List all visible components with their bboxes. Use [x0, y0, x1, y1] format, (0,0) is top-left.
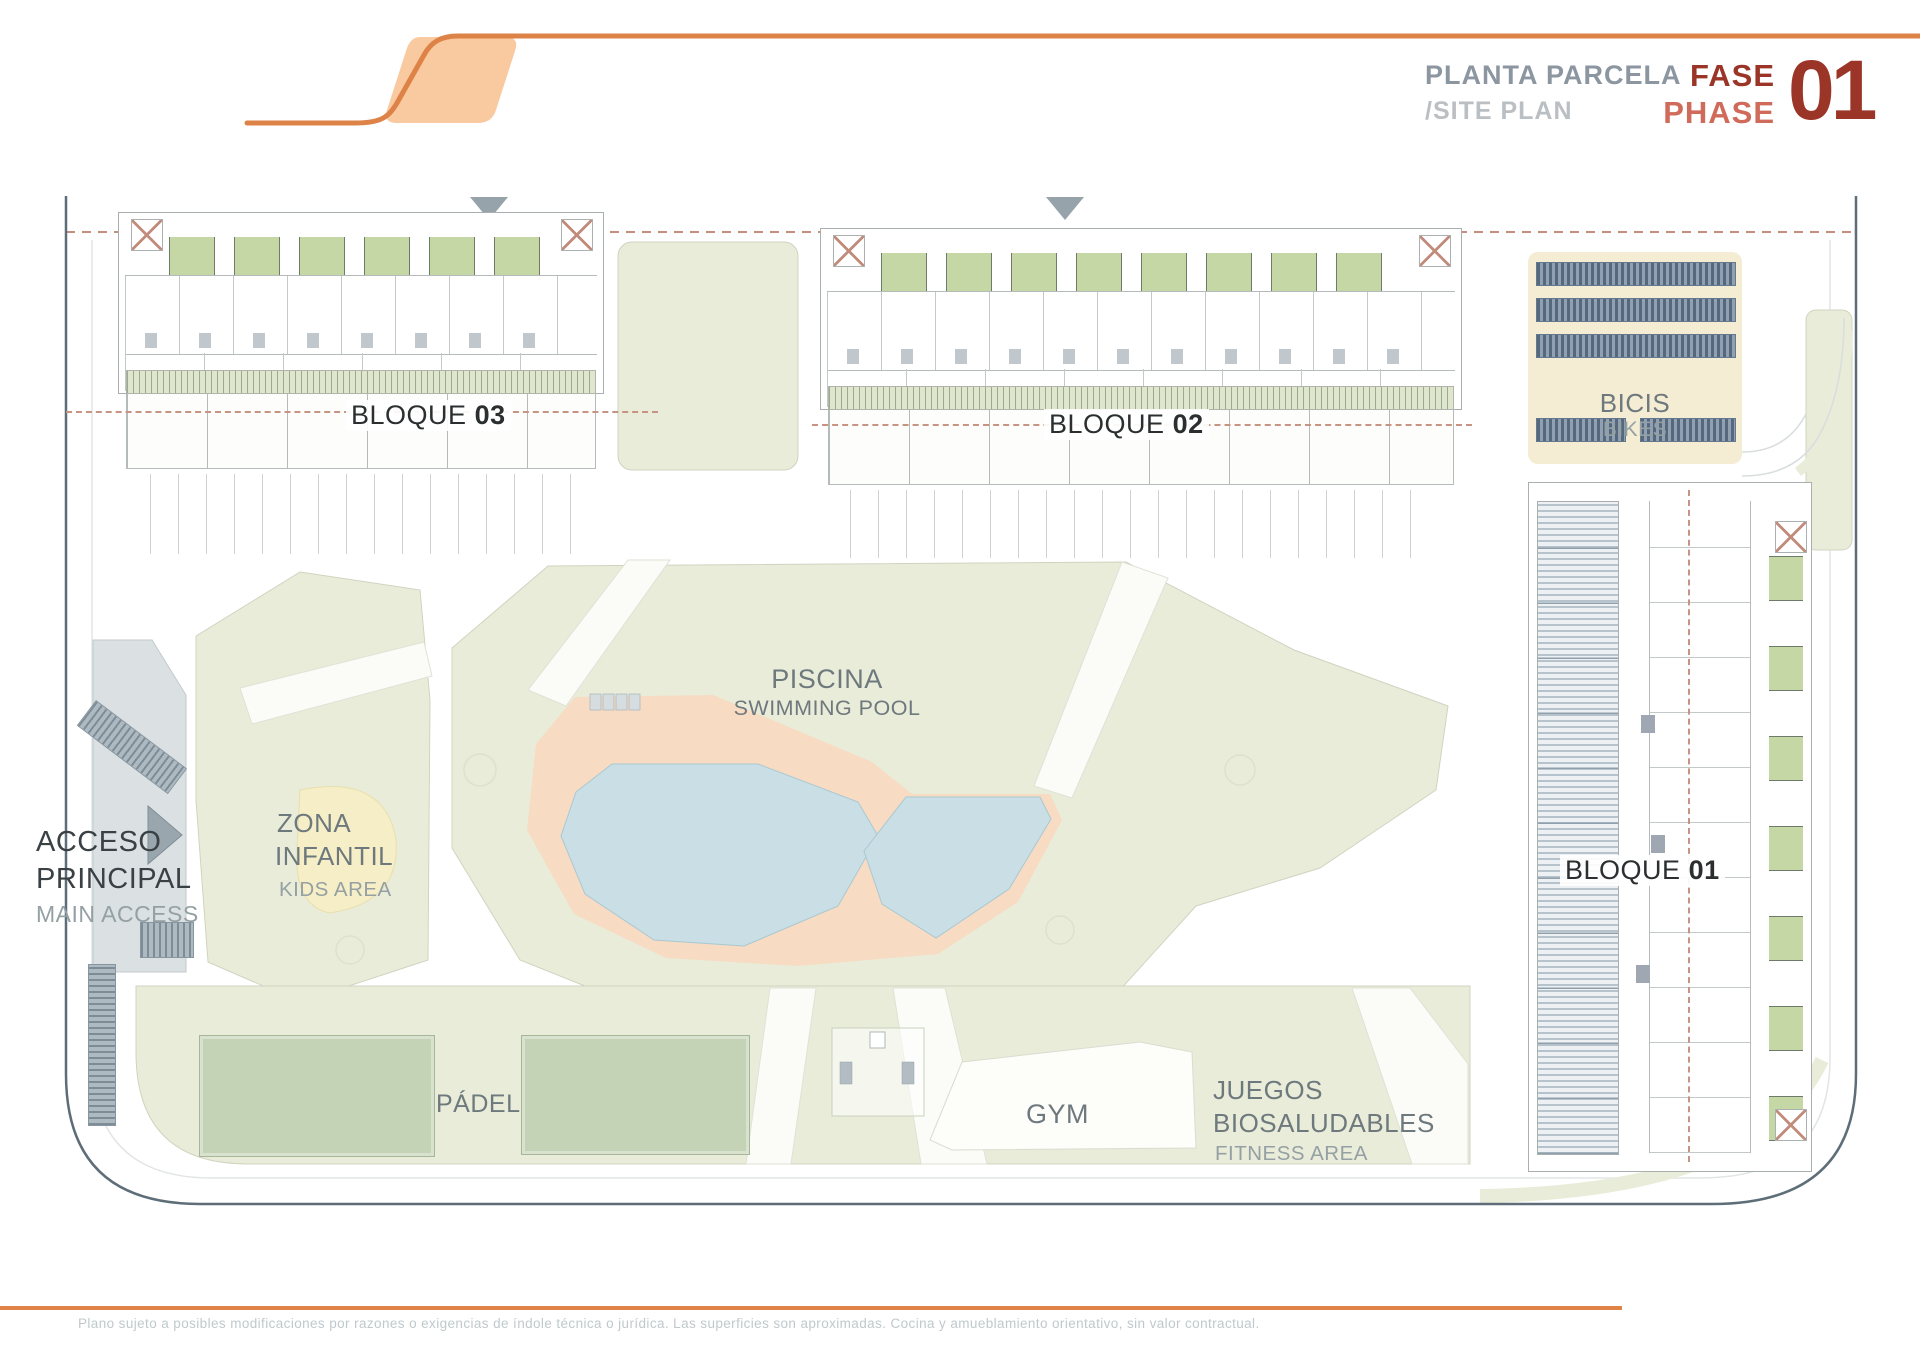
phase-number: 01 [1788, 48, 1873, 132]
fitness-equipment [832, 1028, 924, 1116]
bike-rack [1536, 298, 1736, 322]
stair-core-icon [1775, 1109, 1807, 1141]
terraces [881, 253, 1401, 291]
gym-label: GYM [1026, 1099, 1089, 1130]
furniture-marks [847, 349, 1435, 364]
stair-core-icon [833, 235, 865, 267]
bloque-01-number: 01 [1689, 855, 1720, 885]
furniture-mark [1641, 715, 1655, 733]
bike-rack [1536, 262, 1736, 286]
between-blocks-garden [618, 242, 798, 470]
fitness-label-es2: BIOSALUDABLES [1213, 1108, 1435, 1139]
unit-stack-hatched [1537, 501, 1619, 1155]
stair-core-icon [131, 219, 163, 251]
phase-label-en: PHASE [1560, 94, 1775, 131]
kids-label-es2: INFANTIL [275, 841, 393, 872]
bloque-01-prefix: BLOQUE [1565, 855, 1681, 885]
fitness-label-es1: JUEGOS [1213, 1075, 1323, 1106]
bloque-03-label: BLOQUE 03 [346, 400, 511, 431]
pool-label-en: SWIMMING POOL [707, 696, 947, 721]
kids-label-es1: ZONA [277, 808, 351, 839]
bloque-01-building [1528, 482, 1812, 1172]
bloque-01-label: BLOQUE 01 [1560, 855, 1725, 886]
phase-label: FASE PHASE [1560, 57, 1775, 131]
bikes-label-en: BIKES [1528, 418, 1742, 442]
phase-label-es: FASE [1560, 57, 1775, 94]
bloque-02-building [820, 228, 1462, 410]
parking-row [850, 490, 1430, 558]
footer-accent-line [0, 1306, 1622, 1310]
entry-arrow-icon [1046, 197, 1084, 220]
bloque-02-number: 02 [1173, 409, 1204, 439]
pool-label-es: PISCINA [707, 664, 947, 695]
stair-core-icon [1419, 235, 1451, 267]
stair-core-icon [561, 219, 593, 251]
fitness-label-en: FITNESS AREA [1215, 1142, 1368, 1166]
bikes-label-es: BICIS [1528, 388, 1742, 419]
access-label-es1: ACCESO [36, 826, 161, 859]
unit-grid [1649, 501, 1751, 1153]
hedge-strip [126, 370, 596, 394]
access-label-en: MAIN ACCESS [36, 901, 199, 928]
terraces [1769, 513, 1803, 1141]
kids-label-en: KIDS AREA [279, 878, 392, 902]
padel-label: PÁDEL [436, 1090, 520, 1119]
hedge-strip [828, 386, 1454, 410]
furniture-marks [145, 333, 577, 348]
bloque-02-prefix: BLOQUE [1049, 409, 1165, 439]
furniture-mark [1636, 965, 1650, 983]
site-plan-page: BLOQUE 03 BLOQUE 02 BLOQUE 01 BICIS BIKE… [0, 0, 1920, 1362]
padel-court-2 [521, 1035, 750, 1155]
terraces [169, 237, 553, 275]
street-parking-hatch [88, 964, 116, 1126]
bike-rack [1536, 334, 1736, 358]
stair-core-icon [1775, 521, 1807, 553]
kids-park [196, 572, 430, 1002]
bloque-03-building [118, 212, 604, 394]
bloque-03-number: 03 [475, 400, 506, 430]
padel-court-1 [199, 1035, 435, 1157]
bloque-03-prefix: BLOQUE [351, 400, 467, 430]
furniture-mark [1651, 835, 1665, 853]
axis-dashed-line [1688, 490, 1690, 1162]
footer-disclaimer: Plano sujeto a posibles modificaciones p… [78, 1316, 1260, 1331]
bloque-02-label: BLOQUE 02 [1044, 409, 1209, 440]
access-label-es2: PRINCIPAL [36, 863, 191, 896]
parking-row [150, 474, 580, 554]
